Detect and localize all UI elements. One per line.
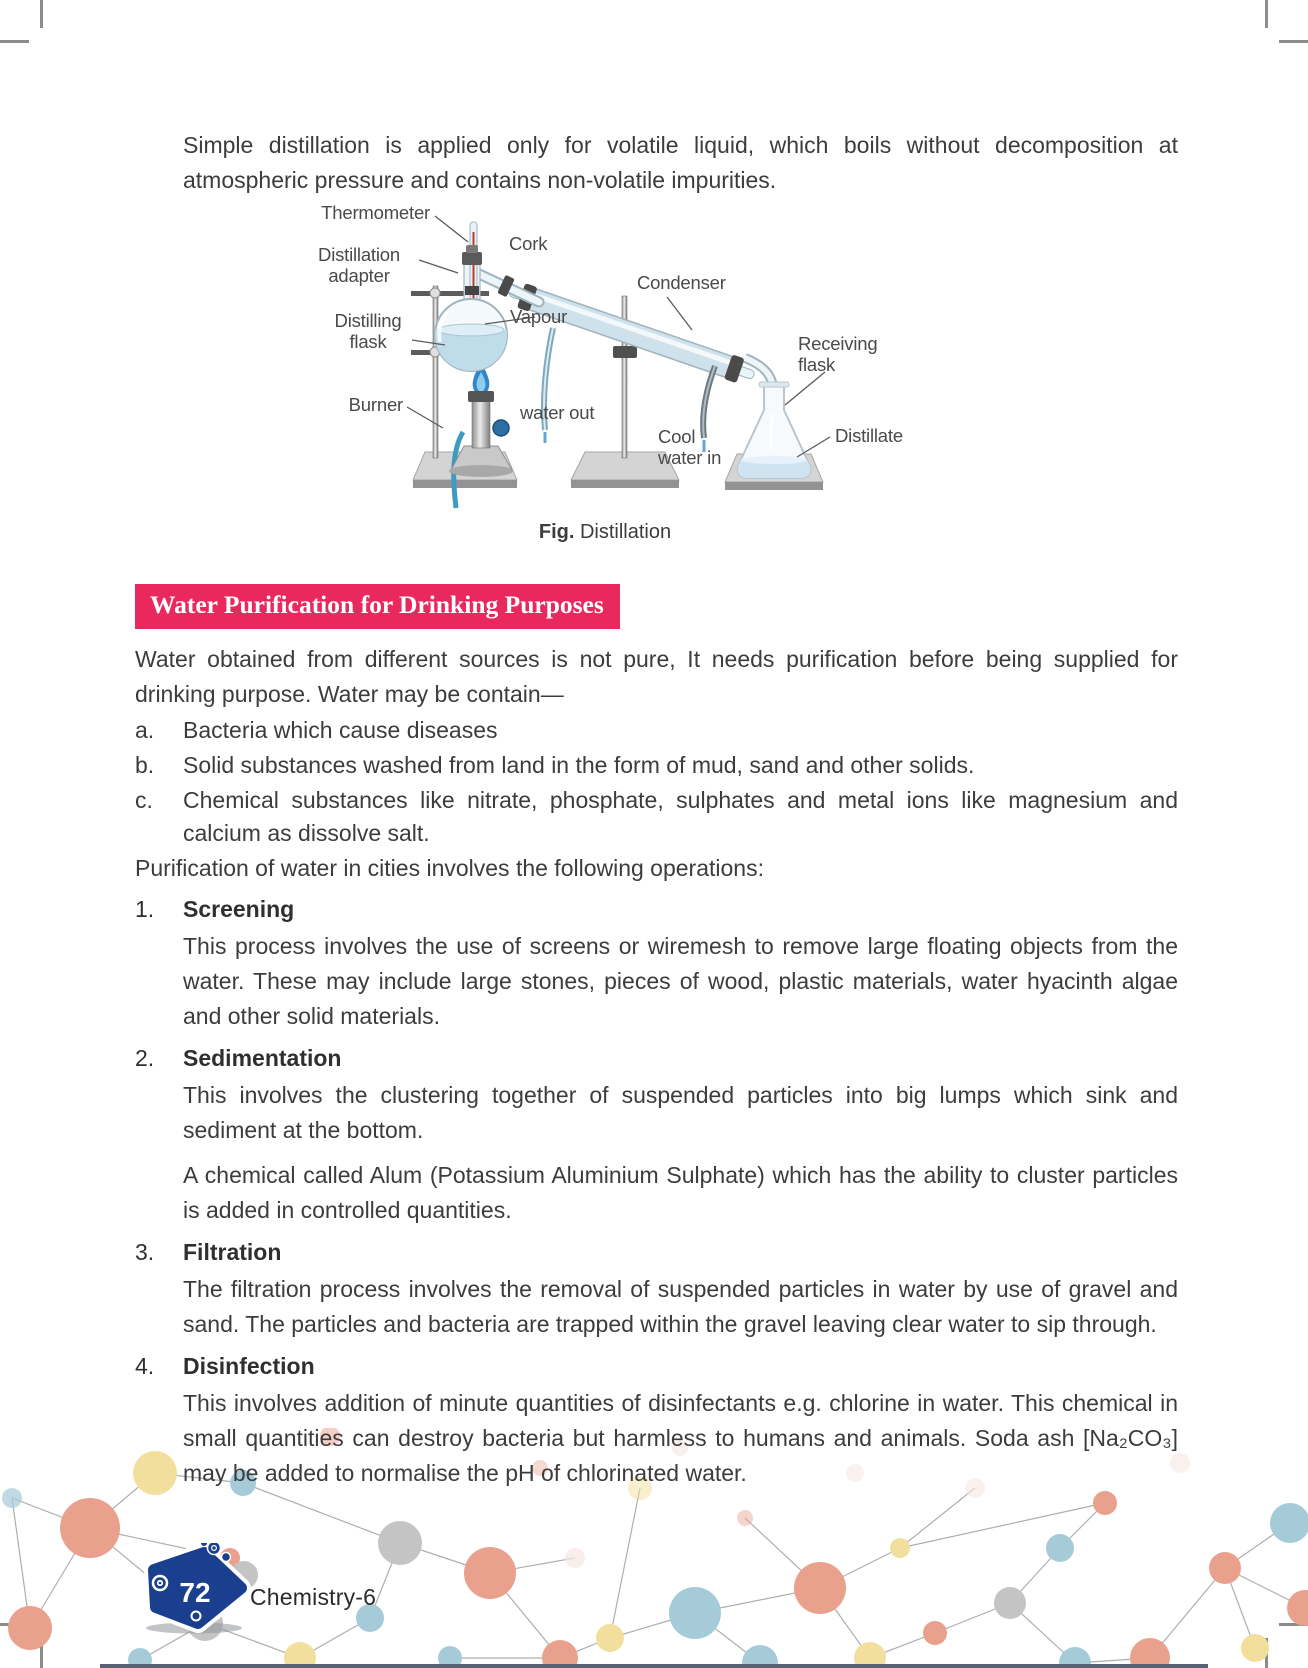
thermometer-label: Thermometer (320, 202, 430, 223)
figure-caption-text: Distillation (580, 521, 671, 543)
distillate-label: Distillate (835, 425, 903, 446)
intro-paragraph: Simple distillation is applied only for … (135, 128, 1178, 198)
figure-caption: Fig. Distillation (285, 521, 925, 544)
operation-4-title: Disinfection (183, 1353, 315, 1379)
operation-4-number: 4. (135, 1350, 154, 1382)
list-text-b: Solid substances washed from land in the… (183, 752, 974, 778)
operation-3-number: 3. (135, 1236, 154, 1268)
vapour-label: Vapour (510, 306, 567, 327)
water-out-label: water out (520, 402, 594, 423)
operations-intro: Purification of water in cities involves… (135, 852, 1178, 885)
operation-disinfection: 4. Disinfection This involves addition o… (135, 1350, 1178, 1491)
operation-3-paragraph: The filtration process involves the remo… (183, 1272, 1178, 1342)
operation-1-title-row: 1. Screening (135, 893, 1178, 925)
operation-3-title-row: 3. Filtration (135, 1236, 1178, 1268)
operation-4-title-row: 4. Disinfection (135, 1350, 1178, 1382)
list-marker-b: b. (135, 749, 154, 782)
list-item-c: c. Chemical substances like nitrate, pho… (135, 784, 1178, 850)
cool-water-in-label: Cool water in (658, 426, 722, 468)
crop-mark-top-right-v (1265, 0, 1268, 28)
figure-caption-prefix: Fig. (539, 521, 575, 543)
distilling-flask-label: Distilling flask (327, 310, 409, 352)
list-item-a: a. Bacteria which cause diseases (135, 714, 1178, 747)
operation-filtration: 3. Filtration The filtration process inv… (135, 1236, 1178, 1342)
page-number: 72 (160, 1577, 230, 1609)
receiving-flask-label: Receiving flask (798, 333, 882, 375)
book-title: Chemistry-6 (250, 1584, 376, 1611)
bottom-rule (100, 1664, 1208, 1668)
list-marker-a: a. (135, 714, 154, 747)
operation-1-number: 1. (135, 893, 154, 925)
operation-1-title: Screening (183, 896, 294, 922)
burner-label: Burner (323, 394, 403, 415)
distilling-flask-glass (433, 299, 509, 374)
operation-2-number: 2. (135, 1042, 154, 1074)
operation-3-title: Filtration (183, 1239, 281, 1265)
operation-2-paragraph-2: A chemical called Alum (Potassium Alumin… (183, 1158, 1178, 1228)
cork-label: Cork (509, 233, 547, 254)
water-out-tube (544, 328, 553, 443)
section-heading-banner: Water Purification for Drinking Purposes (135, 584, 620, 629)
distillation-figure: Thermometer Cork Distillation adapter Di… (285, 200, 925, 515)
list-marker-c: c. (135, 784, 153, 817)
crop-mark-top-left-v (40, 0, 43, 28)
operation-4-paragraph: This involves addition of minute quantit… (183, 1386, 1178, 1491)
crop-mark-top-right-h (1279, 40, 1308, 43)
list-text-a: Bacteria which cause diseases (183, 717, 498, 743)
distillation-adapter-label: Distillation adapter (303, 244, 415, 286)
crop-mark-top-left-h (0, 40, 29, 43)
condenser-label: Condenser (637, 272, 726, 293)
operation-2-title: Sedimentation (183, 1045, 341, 1071)
page-content: Simple distillation is applied only for … (135, 128, 1178, 1491)
operation-2-title-row: 2. Sedimentation (135, 1042, 1178, 1074)
list-text-c: Chemical substances like nitrate, phosph… (183, 787, 1178, 846)
textbook-page: 72 Chemistry-6 Simple distillation is ap… (0, 0, 1308, 1668)
operation-2-paragraph-1: This involves the clustering together of… (183, 1078, 1178, 1148)
section-intro-paragraph: Water obtained from different sources is… (135, 642, 1178, 712)
operation-screening: 1. Screening This process involves the u… (135, 893, 1178, 1034)
operation-sedimentation: 2. Sedimentation This involves the clust… (135, 1042, 1178, 1228)
list-item-b: b. Solid substances washed from land in … (135, 749, 1178, 782)
operation-1-paragraph: This process involves the use of screens… (183, 929, 1178, 1034)
